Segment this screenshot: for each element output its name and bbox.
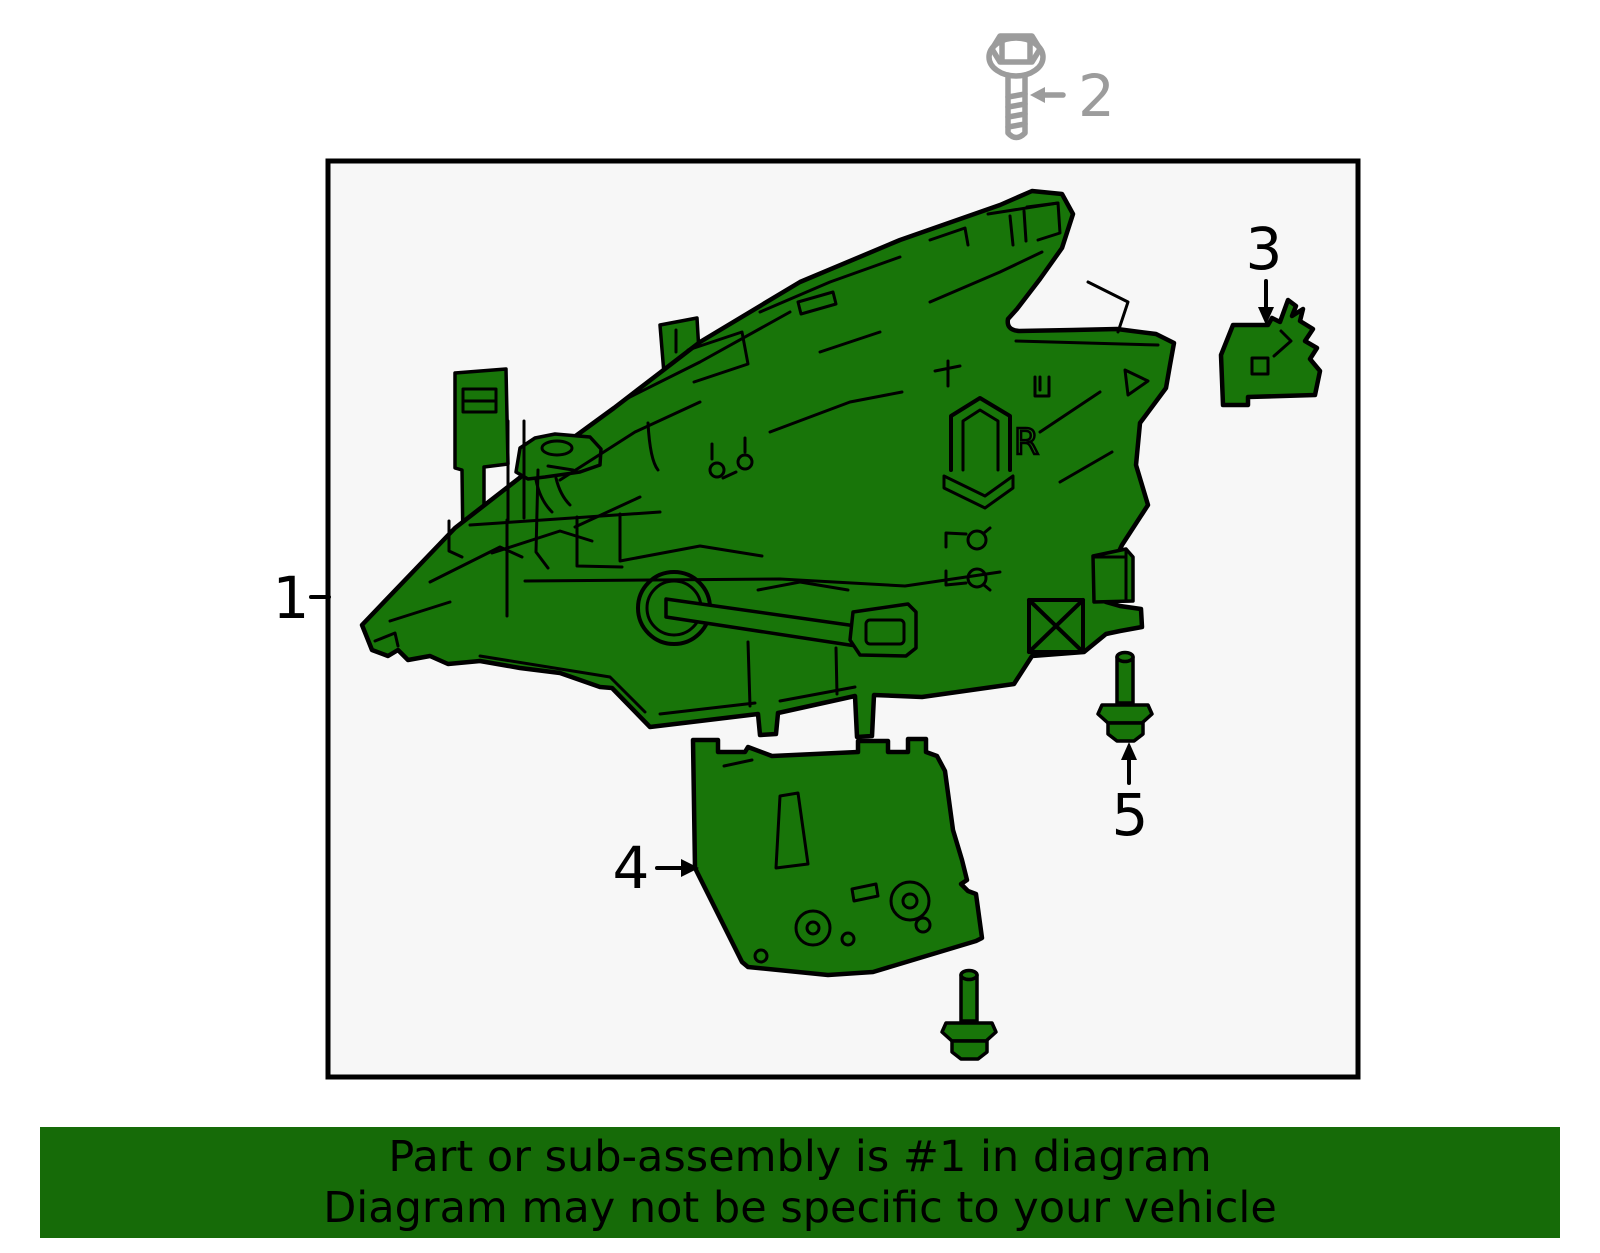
parts-diagram-canvas: 2 xyxy=(0,0,1600,1249)
bracket-part-4 xyxy=(693,739,982,975)
callout-2-label: 2 xyxy=(1078,62,1115,130)
callout-3-label: 3 xyxy=(1246,215,1283,283)
callout-5-label: 5 xyxy=(1112,781,1149,849)
callout-2: 2 xyxy=(1030,62,1115,130)
r-side-marking: R xyxy=(1014,422,1039,463)
legend-banner: Part or sub-assembly is #1 in diagram Di… xyxy=(40,1127,1560,1238)
callout-2-arrow xyxy=(1030,87,1045,103)
callout-4-label: 4 xyxy=(613,834,650,902)
legend-banner-line2: Diagram may not be specific to your vehi… xyxy=(323,1183,1277,1234)
callout-1: 1 xyxy=(273,564,329,632)
gray-bolt-part-2 xyxy=(989,36,1043,138)
callout-1-label: 1 xyxy=(273,564,310,632)
parts-diagram-stage: 2 xyxy=(0,0,1600,1249)
legend-banner-line1: Part or sub-assembly is #1 in diagram xyxy=(388,1132,1211,1183)
grommet xyxy=(850,604,916,656)
